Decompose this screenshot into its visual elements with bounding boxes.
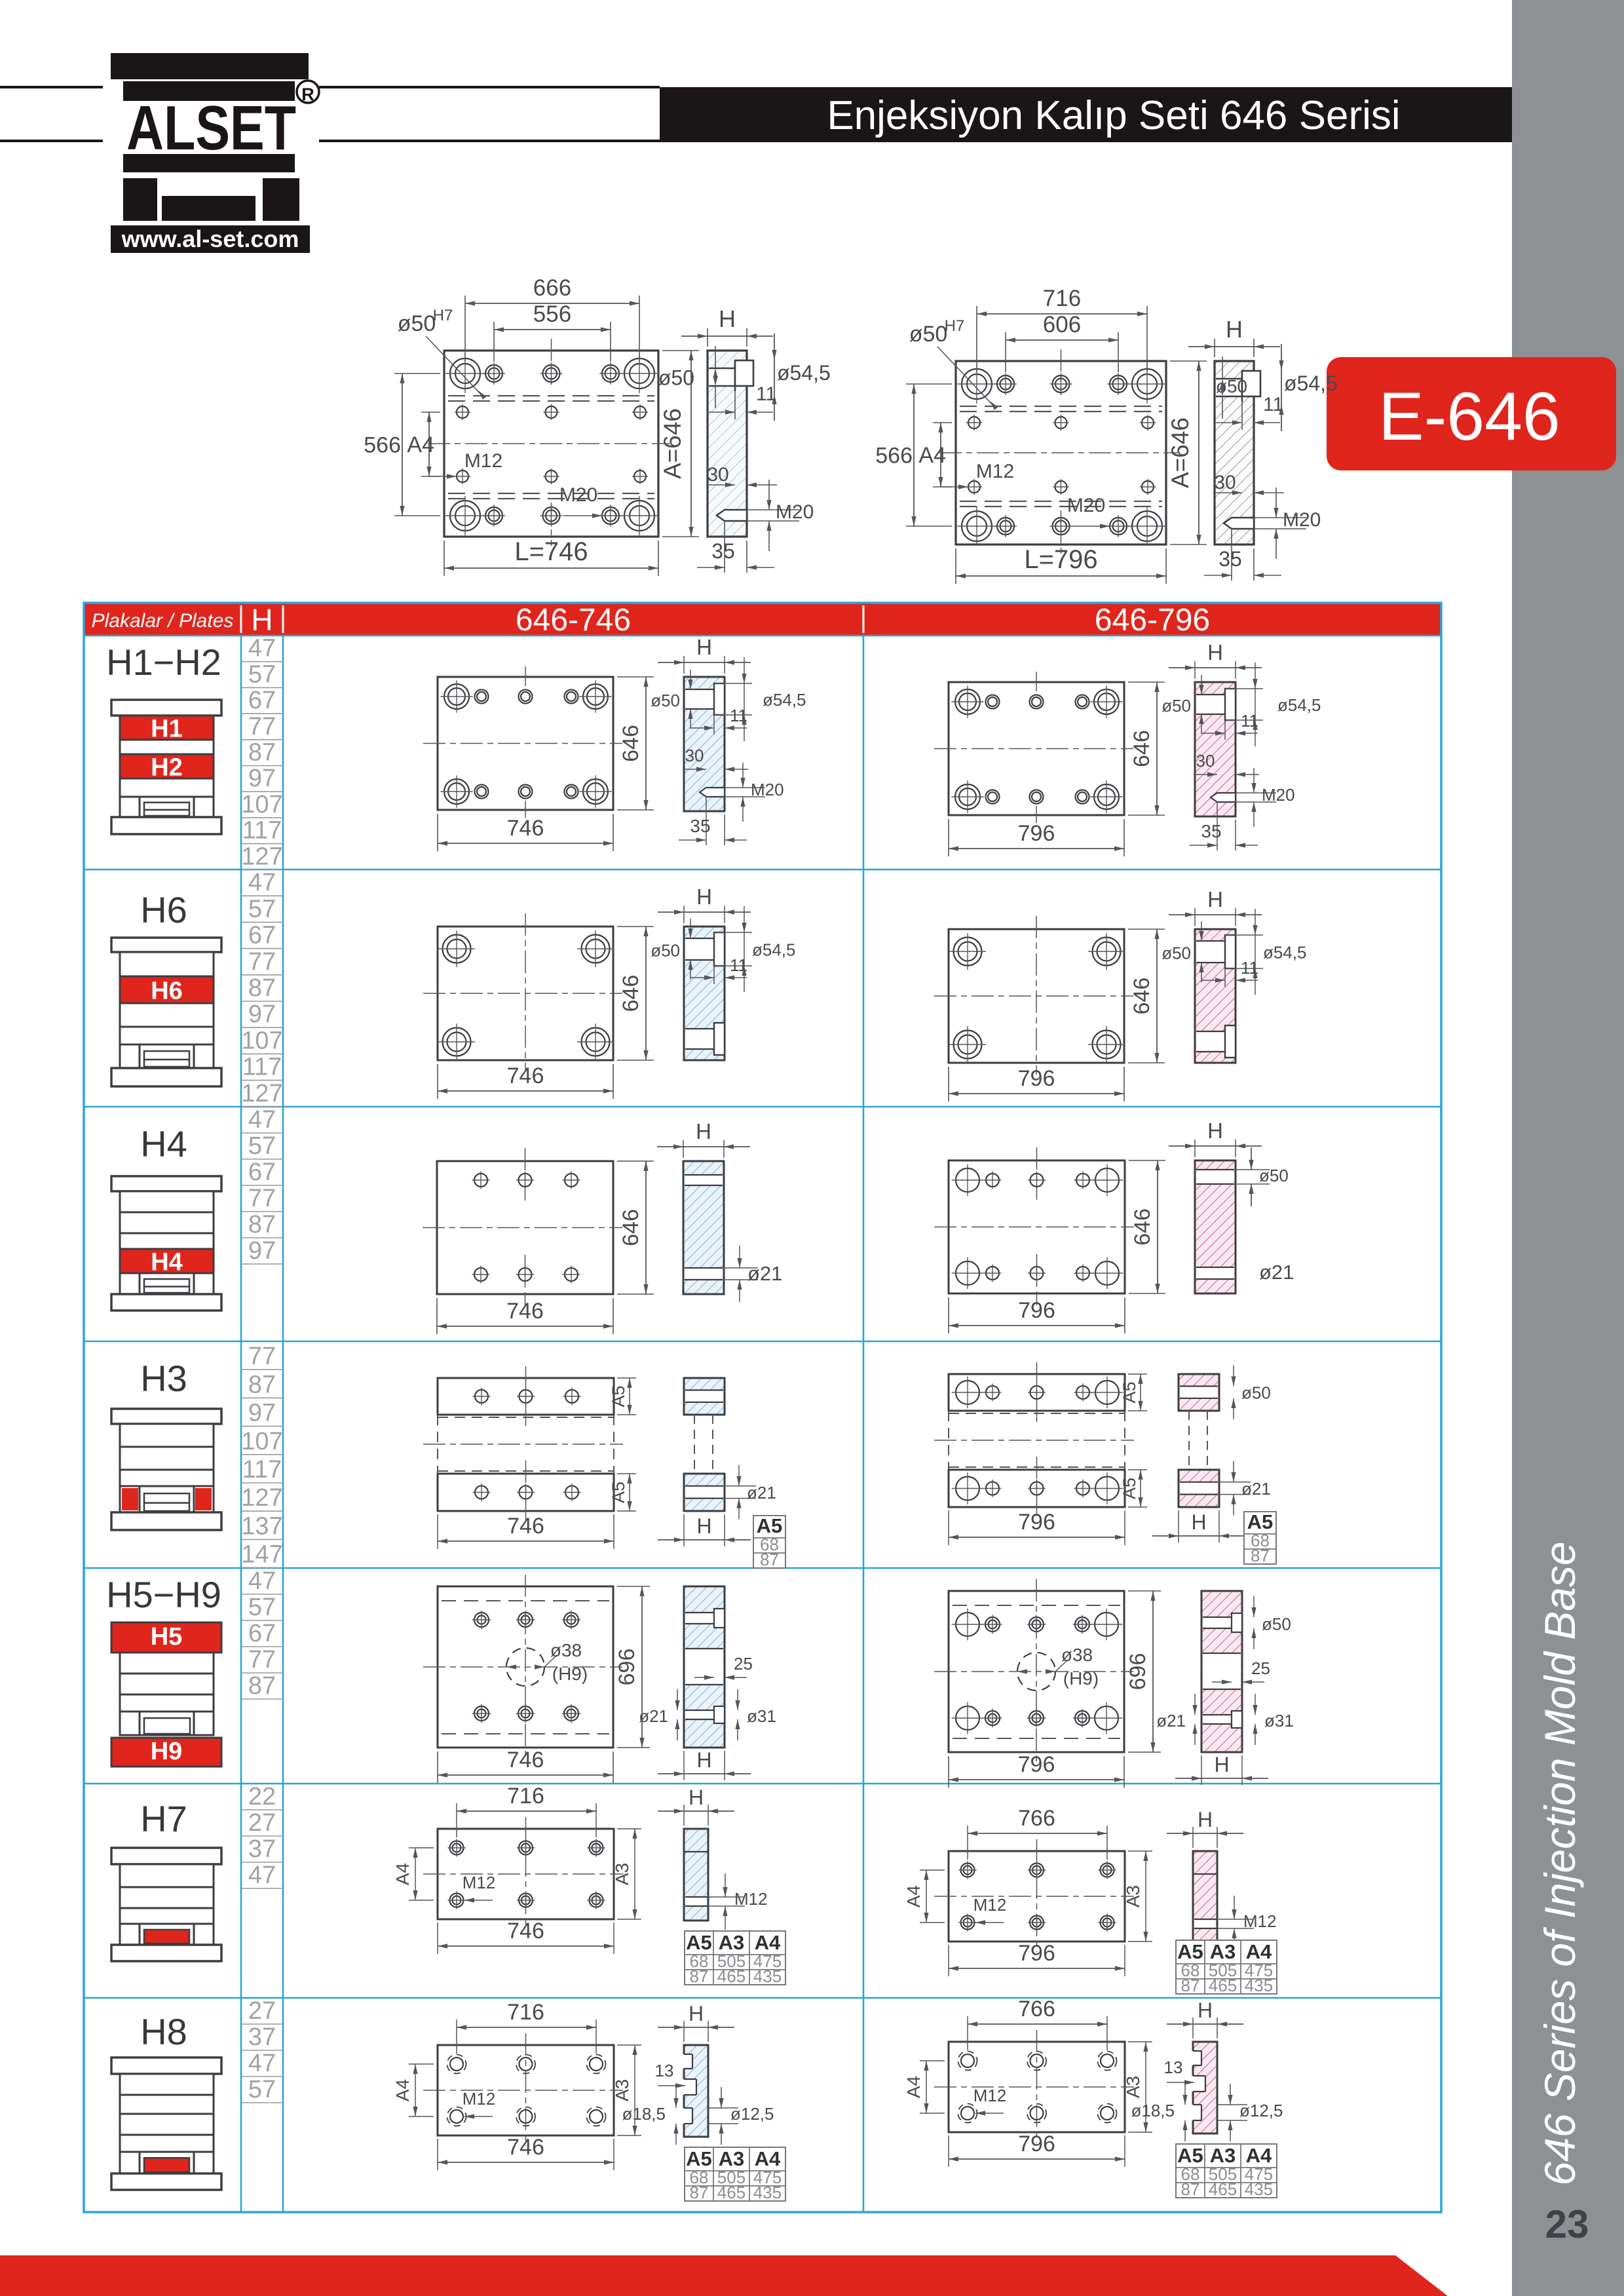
svg-text:87: 87	[248, 1211, 276, 1238]
svg-text:H9: H9	[151, 1738, 183, 1765]
svg-text:M20: M20	[776, 501, 814, 523]
svg-text:ø21: ø21	[639, 1706, 668, 1726]
svg-text:57: 57	[248, 1594, 276, 1621]
svg-text:716: 716	[1043, 286, 1081, 311]
svg-text:23: 23	[1545, 2202, 1589, 2246]
svg-text:746: 746	[507, 1063, 544, 1088]
svg-text:127: 127	[241, 1484, 282, 1512]
svg-text:47: 47	[248, 869, 276, 896]
svg-text:796: 796	[1018, 1298, 1055, 1323]
svg-text:H: H	[1207, 887, 1223, 911]
svg-text:27: 27	[248, 1809, 276, 1837]
svg-text:H7: H7	[140, 1798, 187, 1839]
svg-text:435: 435	[1245, 2179, 1273, 2199]
svg-text:137: 137	[241, 1512, 282, 1540]
svg-text:A4: A4	[392, 1863, 413, 1885]
svg-text:M12: M12	[463, 1873, 496, 1892]
svg-text:A3: A3	[1123, 2076, 1143, 2098]
svg-text:ø31: ø31	[747, 1706, 776, 1726]
svg-text:30: 30	[707, 464, 728, 486]
svg-text:77: 77	[248, 1646, 276, 1674]
svg-text:A4: A4	[918, 443, 946, 468]
svg-text:M12: M12	[973, 1895, 1007, 1915]
svg-text:796: 796	[1018, 1752, 1055, 1777]
svg-text:766: 766	[1018, 1997, 1055, 2021]
svg-text:ø50: ø50	[1262, 1615, 1291, 1634]
svg-text:ø12,5: ø12,5	[1239, 2101, 1283, 2120]
svg-text:746: 746	[506, 1299, 544, 1324]
svg-text:L=746: L=746	[514, 537, 588, 566]
svg-text:E-646: E-646	[1378, 379, 1560, 455]
svg-text:A=646: A=646	[659, 408, 686, 479]
svg-text:716: 716	[507, 1784, 544, 1808]
svg-text:M20: M20	[1262, 785, 1295, 805]
svg-text:ø21: ø21	[1241, 1479, 1271, 1499]
svg-text:97: 97	[248, 765, 276, 792]
svg-text:13: 13	[1164, 2057, 1183, 2077]
svg-text:H7: H7	[433, 307, 453, 324]
svg-text:127: 127	[241, 843, 282, 870]
svg-text:M20: M20	[559, 484, 597, 506]
svg-text:435: 435	[753, 1966, 782, 1986]
svg-text:796: 796	[1018, 2132, 1055, 2156]
svg-text:716: 716	[507, 2000, 544, 2025]
svg-text:606: 606	[1043, 312, 1081, 337]
svg-text:87: 87	[248, 1371, 276, 1398]
svg-text:11: 11	[1241, 711, 1258, 731]
svg-text:35: 35	[1201, 821, 1221, 841]
svg-text:117: 117	[242, 817, 282, 845]
svg-text:30: 30	[1214, 472, 1236, 493]
svg-text:ø18,5: ø18,5	[1131, 2101, 1175, 2120]
svg-text:H: H	[251, 603, 273, 637]
svg-text:ø50: ø50	[1161, 944, 1191, 963]
svg-text:H: H	[1207, 1119, 1223, 1143]
svg-text:H1: H1	[151, 716, 183, 743]
svg-text:796: 796	[1018, 1066, 1055, 1091]
svg-text:(H9): (H9)	[1063, 1668, 1099, 1689]
svg-text:H2: H2	[151, 754, 183, 782]
svg-text:H: H	[696, 1514, 711, 1538]
svg-text:Enjeksiyon Kalıp Seti 646 Seri: Enjeksiyon Kalıp Seti 646 Serisi	[827, 93, 1400, 138]
svg-text:57: 57	[248, 660, 276, 688]
svg-text:H6: H6	[151, 978, 183, 1005]
svg-text:ø12,5: ø12,5	[730, 2104, 774, 2124]
svg-text:37: 37	[248, 2023, 276, 2051]
svg-text:A5: A5	[1247, 1510, 1274, 1533]
svg-text:A4: A4	[755, 2147, 781, 2170]
svg-text:A3: A3	[719, 1931, 745, 1954]
svg-text:H1−H2: H1−H2	[106, 641, 221, 683]
svg-text:746: 746	[507, 1514, 544, 1539]
svg-text:87: 87	[248, 974, 276, 1002]
svg-text:67: 67	[248, 1158, 276, 1186]
svg-text:746: 746	[507, 2135, 544, 2160]
svg-text:646: 646	[1130, 1208, 1155, 1246]
svg-text:766: 766	[1018, 1806, 1055, 1831]
svg-text:47: 47	[248, 635, 276, 662]
svg-text:A5: A5	[686, 2147, 712, 2170]
svg-text:A5: A5	[757, 1514, 783, 1537]
svg-text:25: 25	[734, 1654, 753, 1674]
svg-text:A3: A3	[719, 2147, 745, 2170]
svg-text:ø50: ø50	[1241, 1383, 1271, 1403]
svg-text:57: 57	[248, 1132, 276, 1160]
svg-text:ø54,5: ø54,5	[1284, 372, 1338, 395]
svg-text:H8: H8	[140, 2011, 187, 2052]
svg-text:A3: A3	[1123, 1885, 1143, 1907]
svg-text:ø31: ø31	[1264, 1711, 1294, 1731]
svg-text:646-746: 646-746	[516, 603, 631, 638]
svg-text:57: 57	[248, 2076, 276, 2103]
svg-text:77: 77	[248, 1343, 276, 1370]
svg-text:ø21: ø21	[1259, 1261, 1294, 1284]
svg-text:67: 67	[248, 687, 276, 714]
svg-text:H6: H6	[140, 889, 187, 930]
svg-text:A5: A5	[609, 1385, 628, 1407]
svg-text:87: 87	[248, 739, 276, 767]
svg-text:11: 11	[756, 383, 776, 405]
svg-text:A4: A4	[1246, 1940, 1272, 1963]
svg-text:746: 746	[507, 1919, 544, 1943]
svg-text:57: 57	[248, 895, 276, 923]
svg-text:87: 87	[1181, 1976, 1200, 1995]
svg-text:117: 117	[242, 1456, 282, 1483]
svg-text:30: 30	[1196, 751, 1215, 771]
svg-text:35: 35	[1218, 547, 1242, 571]
svg-text:ø50: ø50	[651, 691, 680, 710]
svg-text:(H9): (H9)	[552, 1664, 588, 1684]
svg-text:77: 77	[248, 713, 276, 740]
svg-text:M12: M12	[976, 461, 1014, 482]
svg-text:435: 435	[753, 2183, 782, 2202]
svg-text:13: 13	[655, 2061, 674, 2080]
svg-text:A=646: A=646	[1167, 417, 1194, 488]
svg-text:127: 127	[241, 1080, 282, 1107]
svg-text:H5−H9: H5−H9	[106, 1574, 221, 1615]
svg-text:A5: A5	[1177, 1940, 1203, 1963]
svg-text:L=796: L=796	[1024, 545, 1097, 574]
svg-text:97: 97	[248, 1001, 276, 1028]
svg-text:465: 465	[1209, 1976, 1237, 1995]
svg-text:ø50: ø50	[651, 941, 680, 961]
svg-text:ø50: ø50	[1259, 1166, 1289, 1185]
svg-text:ø21: ø21	[1156, 1711, 1186, 1731]
svg-text:ø54,5: ø54,5	[763, 690, 806, 710]
svg-text:47: 47	[248, 1106, 276, 1134]
svg-text:A5: A5	[1120, 1478, 1139, 1499]
svg-text:117: 117	[242, 1054, 282, 1081]
svg-text:796: 796	[1018, 1941, 1055, 1966]
svg-text:H: H	[719, 305, 736, 332]
svg-text:77: 77	[248, 948, 276, 976]
svg-text:ø50: ø50	[1216, 376, 1247, 396]
svg-text:646: 646	[1129, 978, 1154, 1015]
svg-text:H: H	[696, 1119, 711, 1143]
svg-text:Plakalar / Plates: Plakalar / Plates	[92, 610, 234, 632]
svg-text:ø50: ø50	[398, 311, 436, 336]
svg-text:796: 796	[1018, 1510, 1055, 1535]
svg-text:H3: H3	[140, 1358, 187, 1399]
svg-text:77: 77	[248, 1185, 276, 1212]
svg-text:H: H	[689, 2002, 704, 2025]
svg-text:67: 67	[248, 922, 276, 949]
svg-text:ø18,5: ø18,5	[622, 2104, 666, 2124]
svg-text:47: 47	[248, 1862, 276, 1889]
svg-text:ø54,5: ø54,5	[1263, 943, 1307, 963]
svg-text:47: 47	[248, 2050, 276, 2077]
svg-text:ø50: ø50	[909, 322, 948, 347]
svg-text:H4: H4	[151, 1249, 183, 1276]
svg-text:646: 646	[618, 725, 643, 762]
svg-text:27: 27	[248, 1997, 276, 2025]
svg-text:796: 796	[1018, 821, 1055, 846]
svg-text:87: 87	[690, 1966, 709, 1986]
svg-text:35: 35	[711, 539, 735, 563]
svg-text:35: 35	[690, 816, 710, 836]
svg-text:H7: H7	[945, 317, 965, 335]
svg-text:11: 11	[730, 706, 747, 725]
svg-text:435: 435	[1245, 1976, 1273, 1995]
svg-text:147: 147	[241, 1541, 282, 1569]
svg-text:25: 25	[1251, 1658, 1270, 1678]
svg-text:566: 566	[364, 433, 401, 458]
svg-text:87: 87	[1251, 1546, 1270, 1565]
svg-text:M20: M20	[1067, 495, 1105, 516]
svg-text:H: H	[689, 1786, 704, 1809]
svg-text:H: H	[696, 1748, 711, 1772]
svg-text:465: 465	[1209, 2179, 1237, 2199]
svg-text:11: 11	[1241, 958, 1258, 978]
svg-text:M12: M12	[463, 2089, 496, 2109]
svg-text:696: 696	[614, 1649, 639, 1686]
svg-text:A5: A5	[1177, 2144, 1203, 2167]
svg-text:M12: M12	[464, 450, 502, 472]
svg-text:A4: A4	[755, 1931, 781, 1954]
svg-text:566: 566	[875, 444, 913, 469]
svg-text:H: H	[1214, 1753, 1229, 1776]
svg-text:87: 87	[1181, 2179, 1200, 2199]
svg-text:ø54,5: ø54,5	[752, 940, 796, 960]
svg-text:H: H	[696, 635, 712, 659]
svg-text:746: 746	[507, 816, 544, 841]
svg-text:ø50: ø50	[658, 366, 694, 390]
svg-text:465: 465	[717, 1966, 746, 1986]
svg-text:746: 746	[507, 1748, 544, 1772]
svg-text:H: H	[1198, 1999, 1213, 2022]
svg-text:H: H	[1191, 1510, 1206, 1534]
svg-text:11: 11	[1263, 394, 1283, 415]
svg-text:30: 30	[685, 746, 704, 765]
svg-text:37: 37	[248, 1835, 276, 1863]
svg-text:A3: A3	[1210, 1940, 1236, 1963]
svg-text:M20: M20	[1283, 509, 1321, 531]
svg-text:47: 47	[248, 1567, 276, 1595]
svg-text:97: 97	[248, 1237, 276, 1265]
svg-text:A3: A3	[612, 2079, 632, 2101]
svg-text:H: H	[1207, 640, 1223, 664]
svg-text:646 Series of Injection Mold B: 646 Series of Injection Mold Base	[1536, 1541, 1584, 2185]
svg-text:87: 87	[248, 1672, 276, 1700]
svg-text:646-796: 646-796	[1095, 603, 1210, 638]
svg-text:87: 87	[690, 2183, 709, 2202]
svg-text:646: 646	[618, 1209, 643, 1246]
svg-text:A4: A4	[903, 1885, 924, 1907]
svg-text:A5: A5	[1120, 1381, 1139, 1403]
svg-text:107: 107	[241, 1428, 282, 1455]
svg-text:H: H	[1198, 1808, 1213, 1831]
svg-text:ø21: ø21	[747, 1262, 782, 1285]
svg-text:ø38: ø38	[1061, 1645, 1093, 1665]
svg-text:A4: A4	[1246, 2144, 1272, 2167]
svg-text:696: 696	[1125, 1653, 1150, 1691]
svg-text:ø54,5: ø54,5	[1277, 695, 1321, 715]
svg-text:646: 646	[1129, 730, 1154, 767]
svg-text:556: 556	[533, 301, 571, 327]
svg-text:R: R	[301, 85, 314, 104]
svg-text:A4: A4	[392, 2079, 413, 2101]
svg-text:ø38: ø38	[550, 1640, 582, 1660]
svg-text:H5: H5	[151, 1623, 183, 1651]
svg-text:67: 67	[248, 1620, 276, 1647]
svg-text:M12: M12	[973, 2086, 1007, 2105]
svg-text:A4: A4	[407, 432, 434, 457]
svg-text:107: 107	[241, 1027, 282, 1054]
svg-text:97: 97	[248, 1400, 276, 1427]
svg-text:ø21: ø21	[747, 1483, 776, 1502]
svg-text:H4: H4	[140, 1123, 187, 1164]
svg-text:465: 465	[717, 2183, 746, 2202]
svg-text:11: 11	[730, 955, 747, 975]
svg-text:H: H	[1226, 316, 1243, 343]
svg-text:M20: M20	[751, 780, 784, 799]
svg-text:www.al-set.com: www.al-set.com	[121, 225, 299, 252]
svg-text:22: 22	[248, 1783, 276, 1810]
svg-text:ALSET: ALSET	[126, 93, 296, 163]
svg-text:87: 87	[760, 1550, 779, 1569]
svg-text:ø54,5: ø54,5	[777, 361, 831, 385]
svg-text:A3: A3	[1210, 2144, 1236, 2167]
svg-text:666: 666	[533, 275, 571, 301]
svg-text:646: 646	[618, 975, 643, 1012]
svg-text:A4: A4	[903, 2076, 924, 2098]
svg-text:107: 107	[241, 791, 282, 818]
svg-text:H: H	[696, 885, 712, 909]
svg-text:A5: A5	[609, 1482, 628, 1503]
svg-text:A3: A3	[612, 1863, 632, 1885]
svg-text:A5: A5	[686, 1931, 712, 1954]
svg-text:ø50: ø50	[1161, 696, 1191, 716]
